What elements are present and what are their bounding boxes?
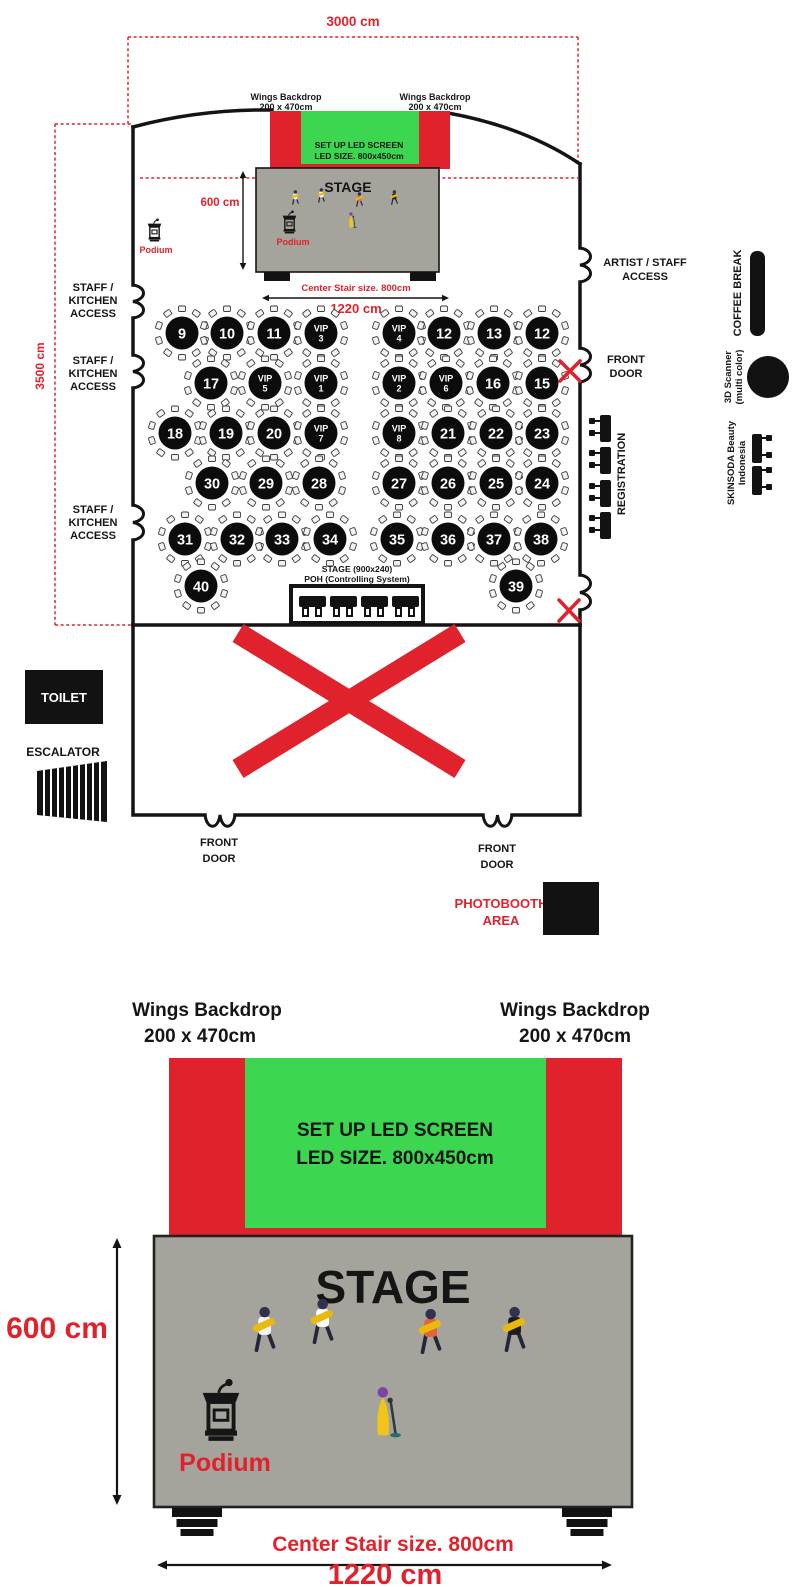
3d-scanner [747,356,789,398]
table-34-33: 34 [303,512,357,566]
table-23-22: 23 [515,406,569,460]
blocked-mark-front-door [560,361,580,381]
plan-podium-offstage-label: Podium [140,245,173,255]
table-30-23: 30 [185,456,239,510]
svg-text:KITCHEN: KITCHEN [69,517,118,529]
table-12-5: 12 [417,306,471,360]
skinsoda-label: SKINSODA Beauty Indonesia [726,420,748,505]
table-16-13: 16 [466,356,520,410]
table-36-35: 36 [421,512,475,566]
svg-text:ACCESS: ACCESS [70,381,116,393]
svg-text:24: 24 [534,476,550,492]
coffee-break-table [750,251,765,336]
table-vip-1-10: VIP1 [294,356,348,410]
plan-stage-stair-right [410,272,436,281]
blocked-mark-side-door [559,600,579,621]
detail-wings-left-label: Wings Backdrop 200 x 470cm [132,1000,282,1047]
svg-text:ARTIST / STAFF: ARTIST / STAFF [603,257,687,269]
table-11-2: 11 [247,306,301,360]
svg-text:34: 34 [322,532,338,548]
table-37-36: 37 [467,512,521,566]
escalator-icon [37,758,107,826]
svg-text:Indonesia: Indonesia [737,440,748,485]
svg-text:15: 15 [534,376,550,392]
svg-text:ACCESS: ACCESS [70,530,116,542]
svg-text:38: 38 [533,532,549,548]
svg-text:17: 17 [203,376,219,392]
table-40-38: 40 [174,559,228,613]
svg-text:SET UP LED SCREEN: SET UP LED SCREEN [297,1120,493,1141]
plan-podium-onstage-label: Podium [277,237,310,247]
table-vip-8-19: VIP8 [372,406,426,460]
event-layout-document: 3000 cm 3500 cm Wings Backdrop 200 x 470… [0,0,800,1587]
floor-plan-canvas: 3000 cm 3500 cm Wings Backdrop 200 x 470… [0,0,800,1587]
svg-text:7: 7 [318,434,323,444]
svg-text:9: 9 [178,326,186,342]
svg-text:31: 31 [177,532,193,548]
svg-text:8: 8 [396,434,401,444]
plan-wings-left-size: 200 x 470cm [259,102,312,112]
svg-text:DOOR: DOOR [610,368,643,380]
detail-center-stair-label: Center Stair size. 800cm [272,1533,514,1556]
table-12-7: 12 [515,306,569,360]
table-25-28: 25 [469,456,523,510]
front-door-right-swing [580,348,591,382]
svg-text:(multi color): (multi color) [734,350,745,405]
plan-wings-right-size: 200 x 470cm [408,102,461,112]
staff-kitchen-door-2 [133,355,144,388]
poh-label-2: POH (Controlling System) [304,574,410,584]
svg-text:FRONT: FRONT [200,837,238,849]
front-door-bottom-left-label: FRONT DOOR [200,837,238,865]
closed-area-mark [238,633,460,769]
table-32-31: 32 [210,512,264,566]
front-door-bottom-right-label: FRONT DOOR [478,843,516,871]
table-22-21: 22 [469,406,523,460]
plan-wings-right-label: Wings Backdrop [400,92,471,102]
svg-text:SKINSODA Beauty: SKINSODA Beauty [726,420,737,505]
plan-led-label-1: SET UP LED SCREEN [315,140,404,150]
photobooth-area-label: PHOTOBOOTH AREA [455,896,548,928]
table-21-20: 21 [421,406,475,460]
svg-text:2: 2 [396,384,401,394]
svg-text:22: 22 [488,426,504,442]
svg-text:40: 40 [193,579,209,595]
staff-kitchen-access-label-1: STAFF / KITCHEN ACCESS [69,282,118,320]
svg-text:VIP: VIP [392,324,407,334]
svg-text:ACCESS: ACCESS [622,271,668,283]
detail-led-screen [245,1058,546,1228]
svg-text:DOOR: DOOR [203,853,236,865]
table-18-15: 18 [148,406,202,460]
svg-text:6: 6 [443,384,448,394]
front-door-bottom-right-swing [483,815,512,826]
plan-stage-height-label: 600 cm [200,197,239,209]
svg-text:AREA: AREA [483,913,520,928]
plan-stage-height-arrow [240,171,247,270]
svg-text:1: 1 [318,384,323,394]
detail-stage-label: STAGE [315,1261,470,1313]
svg-text:VIP: VIP [392,424,407,434]
svg-text:11: 11 [266,326,281,342]
svg-text:30: 30 [204,476,220,492]
skinsoda-booth-tables [752,434,772,495]
poh-label-1: STAGE (900x240) [322,564,393,574]
plan-led-label-2: LED SIZE. 800x450cm [314,151,404,161]
toilet-label: TOILET [41,690,87,705]
front-door-right-label: FRONT DOOR [607,354,645,380]
lower-hall-walls [133,625,580,826]
detail-stage-stairs [172,1508,612,1536]
table-38-37: 38 [514,512,568,566]
svg-text:PHOTOBOOTH: PHOTOBOOTH [455,896,548,911]
svg-text:12: 12 [436,326,452,342]
svg-text:3D Scanner: 3D Scanner [723,351,734,404]
table-19-16: 19 [199,406,253,460]
table-vip-5-9: VIP5 [238,356,292,410]
plan-podium-offstage-icon [148,218,162,241]
staff-kitchen-access-label-3: STAFF / KITCHEN ACCESS [69,504,118,542]
table-27-26: 27 [372,456,426,510]
staff-kitchen-access-label-2: STAFF / KITCHEN ACCESS [69,355,118,393]
svg-text:25: 25 [488,476,504,492]
svg-text:13: 13 [486,326,502,342]
svg-text:FRONT: FRONT [607,354,645,366]
plan-stage-label: STAGE [324,179,371,195]
artist-staff-access-label: ARTIST / STAFF ACCESS [603,257,687,283]
svg-text:STAFF /: STAFF / [73,504,114,516]
svg-text:16: 16 [485,376,501,392]
plan-stage-stair-left [264,272,290,281]
staff-kitchen-door-1 [133,285,144,318]
registration-tables [589,415,611,539]
table-vip-6-12: VIP6 [419,356,473,410]
photobooth-block [543,882,599,935]
svg-text:FRONT: FRONT [478,843,516,855]
plan-center-stair-label: Center Stair size. 800cm [301,283,410,294]
artist-staff-door [580,248,591,282]
svg-text:VIP: VIP [314,324,329,334]
table-35-34: 35 [370,512,424,566]
svg-text:Wings Backdrop: Wings Backdrop [500,1000,650,1021]
svg-text:21: 21 [440,426,456,442]
svg-text:KITCHEN: KITCHEN [69,368,118,380]
svg-text:32: 32 [229,532,245,548]
table-28-25: 28 [292,456,346,510]
svg-text:20: 20 [266,426,282,442]
svg-text:VIP: VIP [314,424,329,434]
svg-text:DOOR: DOOR [481,859,514,871]
svg-text:23: 23 [534,426,550,442]
staff-kitchen-door-3 [133,505,144,540]
svg-text:STAFF /: STAFF / [73,282,114,294]
svg-text:19: 19 [218,426,234,442]
svg-text:VIP: VIP [258,374,273,384]
table-vip-2-11: VIP2 [372,356,426,410]
svg-text:KITCHEN: KITCHEN [69,295,118,307]
svg-text:10: 10 [219,326,235,342]
svg-text:18: 18 [167,426,183,442]
table-33-32: 33 [255,512,309,566]
detail-width-label: 1220 cm [328,1559,443,1587]
coffee-break-label: COFFEE BREAK [732,250,744,337]
svg-text:LED SIZE. 800x450cm: LED SIZE. 800x450cm [296,1148,494,1169]
table-29-24: 29 [239,456,293,510]
plan-height-dimension: 3500 cm [33,342,47,389]
table-26-27: 26 [421,456,475,510]
svg-text:Wings Backdrop: Wings Backdrop [132,1000,282,1021]
table-9-0: 9 [155,306,209,360]
table-10-1: 10 [200,306,254,360]
table-17-8: 17 [184,356,238,410]
svg-text:VIP: VIP [439,374,454,384]
svg-text:4: 4 [396,334,401,344]
svg-text:12: 12 [534,326,550,342]
svg-text:39: 39 [508,579,524,595]
registration-label: REGISTRATION [616,433,628,515]
side-door-swing [580,575,591,610]
svg-text:26: 26 [440,476,456,492]
svg-text:5: 5 [262,384,267,394]
svg-text:VIP: VIP [314,374,329,384]
detail-podium-label: Podium [179,1449,271,1477]
svg-text:VIP: VIP [392,374,407,384]
detail-wings-right-label: Wings Backdrop 200 x 470cm [500,1000,650,1047]
detail-height-label: 600 cm [6,1312,108,1345]
svg-text:36: 36 [440,532,456,548]
svg-text:28: 28 [311,476,327,492]
svg-text:27: 27 [391,476,407,492]
detail-height-arrow [113,1238,122,1505]
table-vip-7-18: VIP7 [294,406,348,460]
svg-text:ACCESS: ACCESS [70,308,116,320]
table-24-29: 24 [515,456,569,510]
svg-text:37: 37 [486,532,502,548]
svg-text:3: 3 [318,334,323,344]
svg-text:200 x 470cm: 200 x 470cm [519,1026,631,1047]
escalator-label: ESCALATOR [26,745,100,759]
table-39-39: 39 [489,559,543,613]
svg-text:29: 29 [258,476,274,492]
table-31-30: 31 [158,512,212,566]
svg-text:200 x 470cm: 200 x 470cm [144,1026,256,1047]
svg-text:35: 35 [389,532,405,548]
plan-width-dimension: 3000 cm [326,14,379,29]
plan-wings-left-label: Wings Backdrop [251,92,322,102]
table-20-17: 20 [247,406,301,460]
table-13-6: 13 [467,306,521,360]
front-door-bottom-left-swing [205,815,235,826]
svg-text:STAFF /: STAFF / [73,355,114,367]
svg-text:33: 33 [274,532,290,548]
3d-scanner-label: 3D Scanner (multi color) [723,350,745,405]
